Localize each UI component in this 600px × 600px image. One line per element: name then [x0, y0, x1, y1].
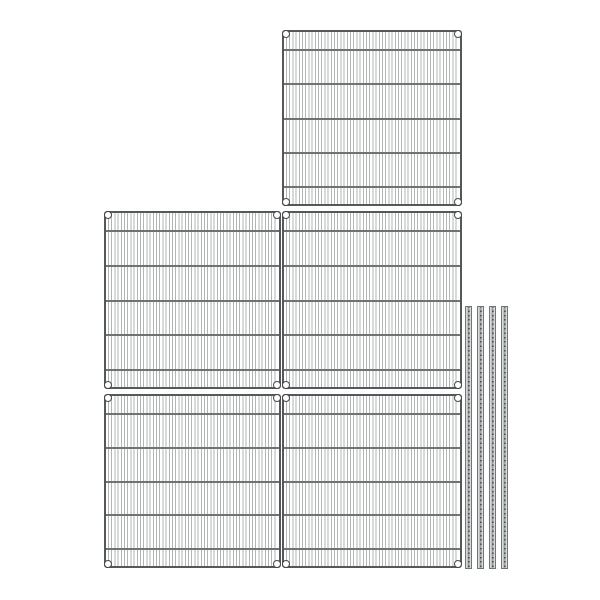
corner-collar-ring-br [273, 381, 281, 389]
shelf-crossbar [106, 514, 279, 516]
shelf-crossbar [106, 230, 279, 232]
corner-collar-ring-bl [104, 560, 112, 568]
corner-collar-ring-bl [104, 381, 112, 389]
corner-collar-ring-tl [282, 211, 290, 219]
shelving-kit-product-image [0, 0, 600, 600]
corner-collar-ring-tr [454, 30, 462, 38]
shelf-crossbar [106, 334, 279, 336]
corner-collar-ring-bl [282, 560, 290, 568]
shelf-crossbar [284, 230, 460, 232]
shelf-crossbar [284, 265, 460, 267]
shelf-crossbar [284, 548, 460, 550]
shelf-crossbar [284, 481, 460, 483]
shelf-crossbar [106, 548, 279, 550]
corner-collar-ring-br [273, 560, 281, 568]
corner-collar-ring-br [454, 381, 462, 389]
shelf-crossbar [106, 481, 279, 483]
shelf-crossbar [284, 118, 460, 120]
corner-collar-ring-tr [273, 211, 281, 219]
shelf-crossbar [284, 300, 460, 302]
corner-collar-ring-tr [273, 394, 281, 402]
shelf-crossbar [284, 186, 460, 188]
shelf-crossbar [106, 413, 279, 415]
shelf-crossbar [106, 447, 279, 449]
shelf-crossbar [284, 152, 460, 154]
shelf-crossbar [284, 369, 460, 371]
corner-collar-ring-br [454, 560, 462, 568]
corner-collar-ring-bl [282, 381, 290, 389]
shelf-crossbar [284, 514, 460, 516]
corner-collar-ring-bl [282, 198, 290, 206]
shelf-crossbar [284, 334, 460, 336]
corner-collar-ring-tr [454, 394, 462, 402]
corner-collar-ring-tl [282, 30, 290, 38]
corner-collar-ring-br [454, 198, 462, 206]
shelf-post-3 [489, 306, 496, 569]
shelf-crossbar [284, 413, 460, 415]
shelf-crossbar [284, 447, 460, 449]
shelf-crossbar [284, 49, 460, 51]
shelf-post-4 [501, 306, 508, 569]
shelf-crossbar [284, 83, 460, 85]
shelf-post-1 [465, 306, 472, 569]
corner-collar-ring-tl [104, 211, 112, 219]
shelf-post-2 [477, 306, 484, 569]
corner-collar-ring-tl [282, 394, 290, 402]
shelf-crossbar [106, 369, 279, 371]
shelf-crossbar [106, 300, 279, 302]
shelf-crossbar [106, 265, 279, 267]
corner-collar-ring-tr [454, 211, 462, 219]
corner-collar-ring-tl [104, 394, 112, 402]
